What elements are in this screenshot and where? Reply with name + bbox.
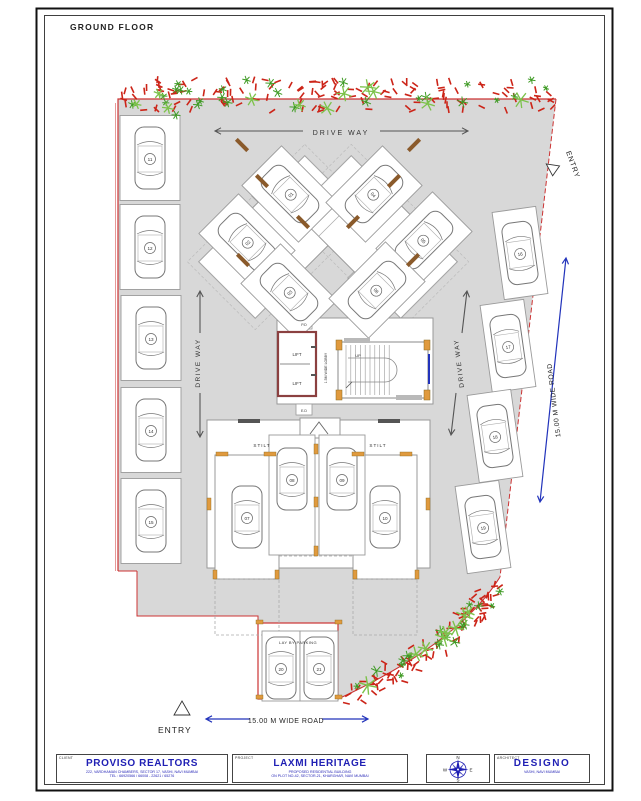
car-icon: 07 — [232, 486, 262, 548]
parking-stall-12: 12 — [120, 205, 180, 290]
car-icon: 20 — [266, 637, 296, 699]
arrow — [322, 716, 368, 722]
stall-number: 08 — [289, 478, 295, 483]
lift-upper-label: LIFT — [292, 352, 301, 357]
client-tag: CLIENT — [59, 756, 73, 760]
parking-stall-13: 13 — [121, 296, 181, 381]
client-name: PROVISO REALTORS — [57, 759, 227, 770]
architect-tag: ARCHITECT — [497, 756, 520, 760]
car-icon: 21 — [304, 637, 334, 699]
arrow — [206, 716, 250, 722]
parking-stall-11: 11 — [120, 116, 180, 201]
titleblock-client: CLIENT PROVISO REALTORS 222, VARDHAMAN C… — [56, 754, 228, 783]
stall-number: 11 — [148, 157, 153, 162]
entry-marker-bottom — [174, 701, 190, 715]
titleblock-compass: N E S W — [426, 754, 490, 783]
site-plan: 01 02 03 04 05 06 07 08 09 10 11 12 — [0, 0, 641, 801]
project-name: LAXMI HERITAGE — [233, 759, 407, 770]
compass-e: E — [469, 767, 472, 772]
stall-number: 14 — [148, 429, 154, 434]
road-bottom-label: 15.00 M WIDE ROAD — [248, 718, 324, 725]
stall-number: 09 — [339, 478, 345, 483]
drawing-sheet: 01 02 03 04 05 06 07 08 09 10 11 12 — [0, 0, 641, 801]
car-icon: 15 — [136, 490, 166, 552]
stall-number: 15 — [148, 520, 154, 525]
car-icon: 14 — [136, 399, 166, 461]
project-tag: PROJECT — [235, 756, 253, 760]
parking-stall-15: 15 — [121, 479, 181, 564]
duct-top-label: P.D — [301, 323, 307, 327]
parking-stall-14: 14 — [121, 388, 181, 473]
duct-bottom-label: E.D — [301, 409, 307, 413]
compass-w: W — [443, 767, 448, 772]
car-icon: 13 — [136, 307, 166, 369]
client-address-line2: TEL : 66920566 / 66008 - 22621 / 65276 — [57, 774, 227, 779]
compass-s: S — [456, 778, 459, 783]
compass-n: N — [456, 755, 459, 760]
architect-name: DESIGNO — [495, 759, 589, 770]
stilt-left-label: STILT — [253, 443, 270, 448]
project-line2: ON PLOT NO-42, SECTOR-21, KHARGHAR, NAVI… — [233, 774, 407, 779]
lift-lower-label: LIFT — [292, 381, 301, 386]
car-icon: 08 — [277, 448, 307, 510]
stall-number: 12 — [147, 246, 153, 251]
titleblock-project: PROJECT LAXMI HERITAGE PROPOSED RESIDENT… — [232, 754, 408, 783]
staircase — [336, 338, 430, 400]
car-icon: 09 — [327, 448, 357, 510]
stall-number: 10 — [382, 516, 388, 521]
titleblock-architect: ARCHITECT DESIGNO VASHI, NAVI MUMBAI — [494, 754, 590, 783]
stair-up-label: UP — [355, 353, 361, 358]
driveway-top-label: DRIVE WAY — [313, 130, 370, 137]
layby-label: LAY BY PARKING — [279, 640, 317, 645]
car-icon: 12 — [135, 216, 165, 278]
entry-bottom-label: ENTRY — [158, 725, 192, 735]
stall-number: 21 — [316, 667, 322, 672]
stall-number: 13 — [148, 337, 154, 342]
stall-number: 20 — [278, 667, 284, 672]
road-right-label: 15.00 M WIDE ROAD — [547, 363, 563, 438]
car-icon: 10 — [370, 486, 400, 548]
stall-number: 07 — [244, 516, 250, 521]
parking-stall-07: 07 — [232, 486, 262, 548]
parking-stall-10: 10 — [370, 486, 400, 548]
compass-rose-icon: N E S W — [430, 755, 486, 782]
lobby-label: 1.5M WIDE LOBBY — [324, 352, 328, 383]
architect-line1: VASHI, NAVI MUMBAI — [495, 770, 589, 775]
floor-title: GROUND FLOOR — [70, 22, 154, 32]
car-icon: 11 — [135, 127, 165, 189]
lift-core — [278, 332, 316, 396]
stilt-right-label: STILT — [369, 443, 386, 448]
entry-top-label: ENTRY — [564, 150, 582, 180]
driveway-left-label: DRIVE WAY — [195, 338, 202, 387]
